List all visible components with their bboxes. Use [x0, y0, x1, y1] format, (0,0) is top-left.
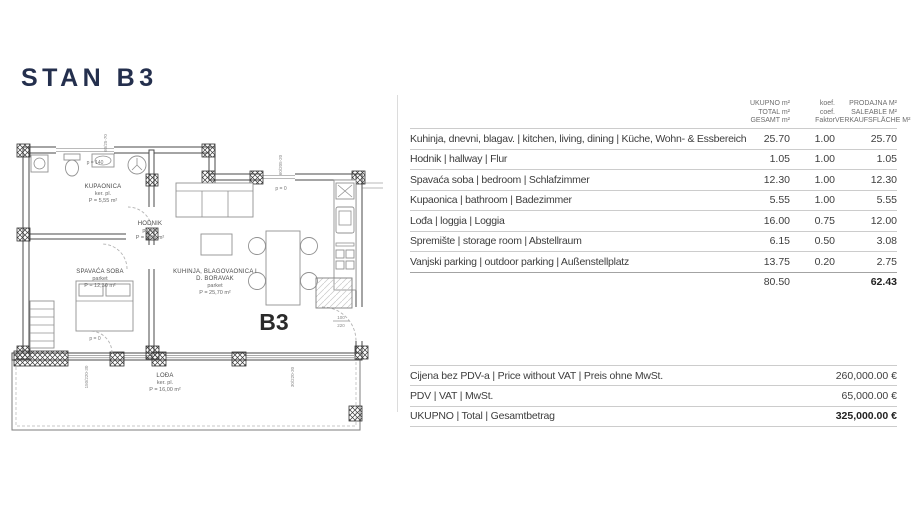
svg-text:ker. pl.: ker. pl. — [95, 191, 112, 197]
column-header-coef: koef. coef. Faktor — [790, 100, 835, 126]
dimension-label: 60/205-20 — [278, 154, 283, 175]
loggia-door-arc — [90, 331, 112, 353]
apartment-datasheet: { "title": "STAN B3", "area_table": { "h… — [0, 0, 919, 525]
room-label-living: KUHINJA, BLAGOVAONICA I — [173, 269, 257, 275]
door-level-label: p = 0 — [275, 186, 286, 192]
table-row: Hodnik | hallway | Flur 1.05 1.00 1.05 — [410, 149, 897, 170]
storage-shaft — [316, 278, 352, 308]
door-level-label: p = 0 — [89, 336, 100, 342]
dimension-label: 60/25-70 — [103, 134, 108, 152]
svg-text:P = 16,00 m²: P = 16,00 m² — [149, 387, 181, 393]
unit-label: B3 — [259, 309, 288, 335]
room-label-bedroom: SPAVAĆA SOBA — [76, 268, 123, 275]
column-header-saleable: PRODAJNA M² SALEABLE M² VERKAUFSFLÄCHE M… — [835, 100, 897, 126]
washing-machine-icon — [31, 155, 48, 172]
room-label-hallway: HODNIK — [138, 221, 163, 227]
table-row: Spavaća soba | bedroom | Schlafzimmer 12… — [410, 169, 897, 190]
entry-dim-height: 220 — [337, 323, 345, 328]
bedroom-door-arc — [102, 244, 127, 269]
table-row: Kuhinja, dnevni, blagav. | kitchen, livi… — [410, 128, 897, 149]
dimension-label: 150/220-30 — [84, 365, 89, 388]
svg-text:P = 1,05 m²: P = 1,05 m² — [136, 235, 165, 241]
chair-icon — [301, 273, 318, 290]
dining-table-icon — [266, 231, 300, 305]
page-title: STAN B3 — [21, 64, 158, 93]
svg-text:parket: parket — [207, 283, 223, 289]
table-row: Lođa | loggia | Loggia 16.00 0.75 12.00 — [410, 210, 897, 231]
svg-text:P = 12,30 m²: P = 12,30 m² — [84, 283, 116, 289]
svg-text:parket: parket — [142, 228, 158, 234]
total-saleable-area: 62.43 — [835, 276, 897, 288]
chair-icon — [301, 238, 318, 255]
chair-icon — [249, 273, 266, 290]
svg-text:P = 5,55 m²: P = 5,55 m² — [89, 198, 118, 204]
area-table-header: UKUPNO m² TOTAL m² GESAMT m² koef. coef.… — [410, 99, 897, 128]
table-row: Vanjski parking | outdoor parking | Auße… — [410, 251, 897, 272]
price-table: Cijena bez PDV-a | Price without VAT | P… — [410, 365, 897, 427]
price-row-total: UKUPNO | Total | Gesamtbetrag 325,000.00… — [410, 406, 897, 426]
dimension-label: 30/220-30 — [290, 366, 295, 387]
living-furniture — [176, 183, 318, 305]
room-label-loggia: LOĐA — [156, 373, 173, 379]
totals-row: 80.50 62.43 — [410, 272, 897, 293]
coffee-table-icon — [201, 234, 232, 255]
floor-plan: KUPAONICA ker. pl. P = 5,55 m² HODNIK pa… — [0, 115, 400, 460]
price-row-vat: PDV | VAT | MwSt. 65,000.00 € — [410, 385, 897, 405]
svg-text:P = 25,70 m²: P = 25,70 m² — [199, 290, 231, 296]
entry-dim-width: 100 — [337, 315, 345, 320]
column-header-total: UKUPNO m² TOTAL m² GESAMT m² — [740, 100, 790, 126]
kitchen-counter — [334, 180, 356, 290]
table-row: Spremište | storage room | Abstellraum 6… — [410, 231, 897, 252]
toilet-icon — [64, 154, 80, 160]
svg-text:ker. pl.: ker. pl. — [157, 380, 174, 386]
total-area: 80.50 — [740, 276, 790, 288]
window-parapet-label: p = 140 — [87, 160, 104, 166]
sofa-icon — [176, 183, 253, 217]
room-label-bathroom: KUPAONICA — [85, 184, 122, 190]
table-row: Kupaonica | bathroom | Badezimmer 5.55 1… — [410, 190, 897, 211]
price-row-net: Cijena bez PDV-a | Price without VAT | P… — [410, 365, 897, 385]
svg-text:D. BORAVAK: D. BORAVAK — [196, 276, 234, 282]
area-table: UKUPNO m² TOTAL m² GESAMT m² koef. coef.… — [410, 99, 897, 292]
svg-text:parket: parket — [92, 276, 108, 282]
chair-icon — [249, 238, 266, 255]
bedroom-furniture — [30, 281, 133, 348]
